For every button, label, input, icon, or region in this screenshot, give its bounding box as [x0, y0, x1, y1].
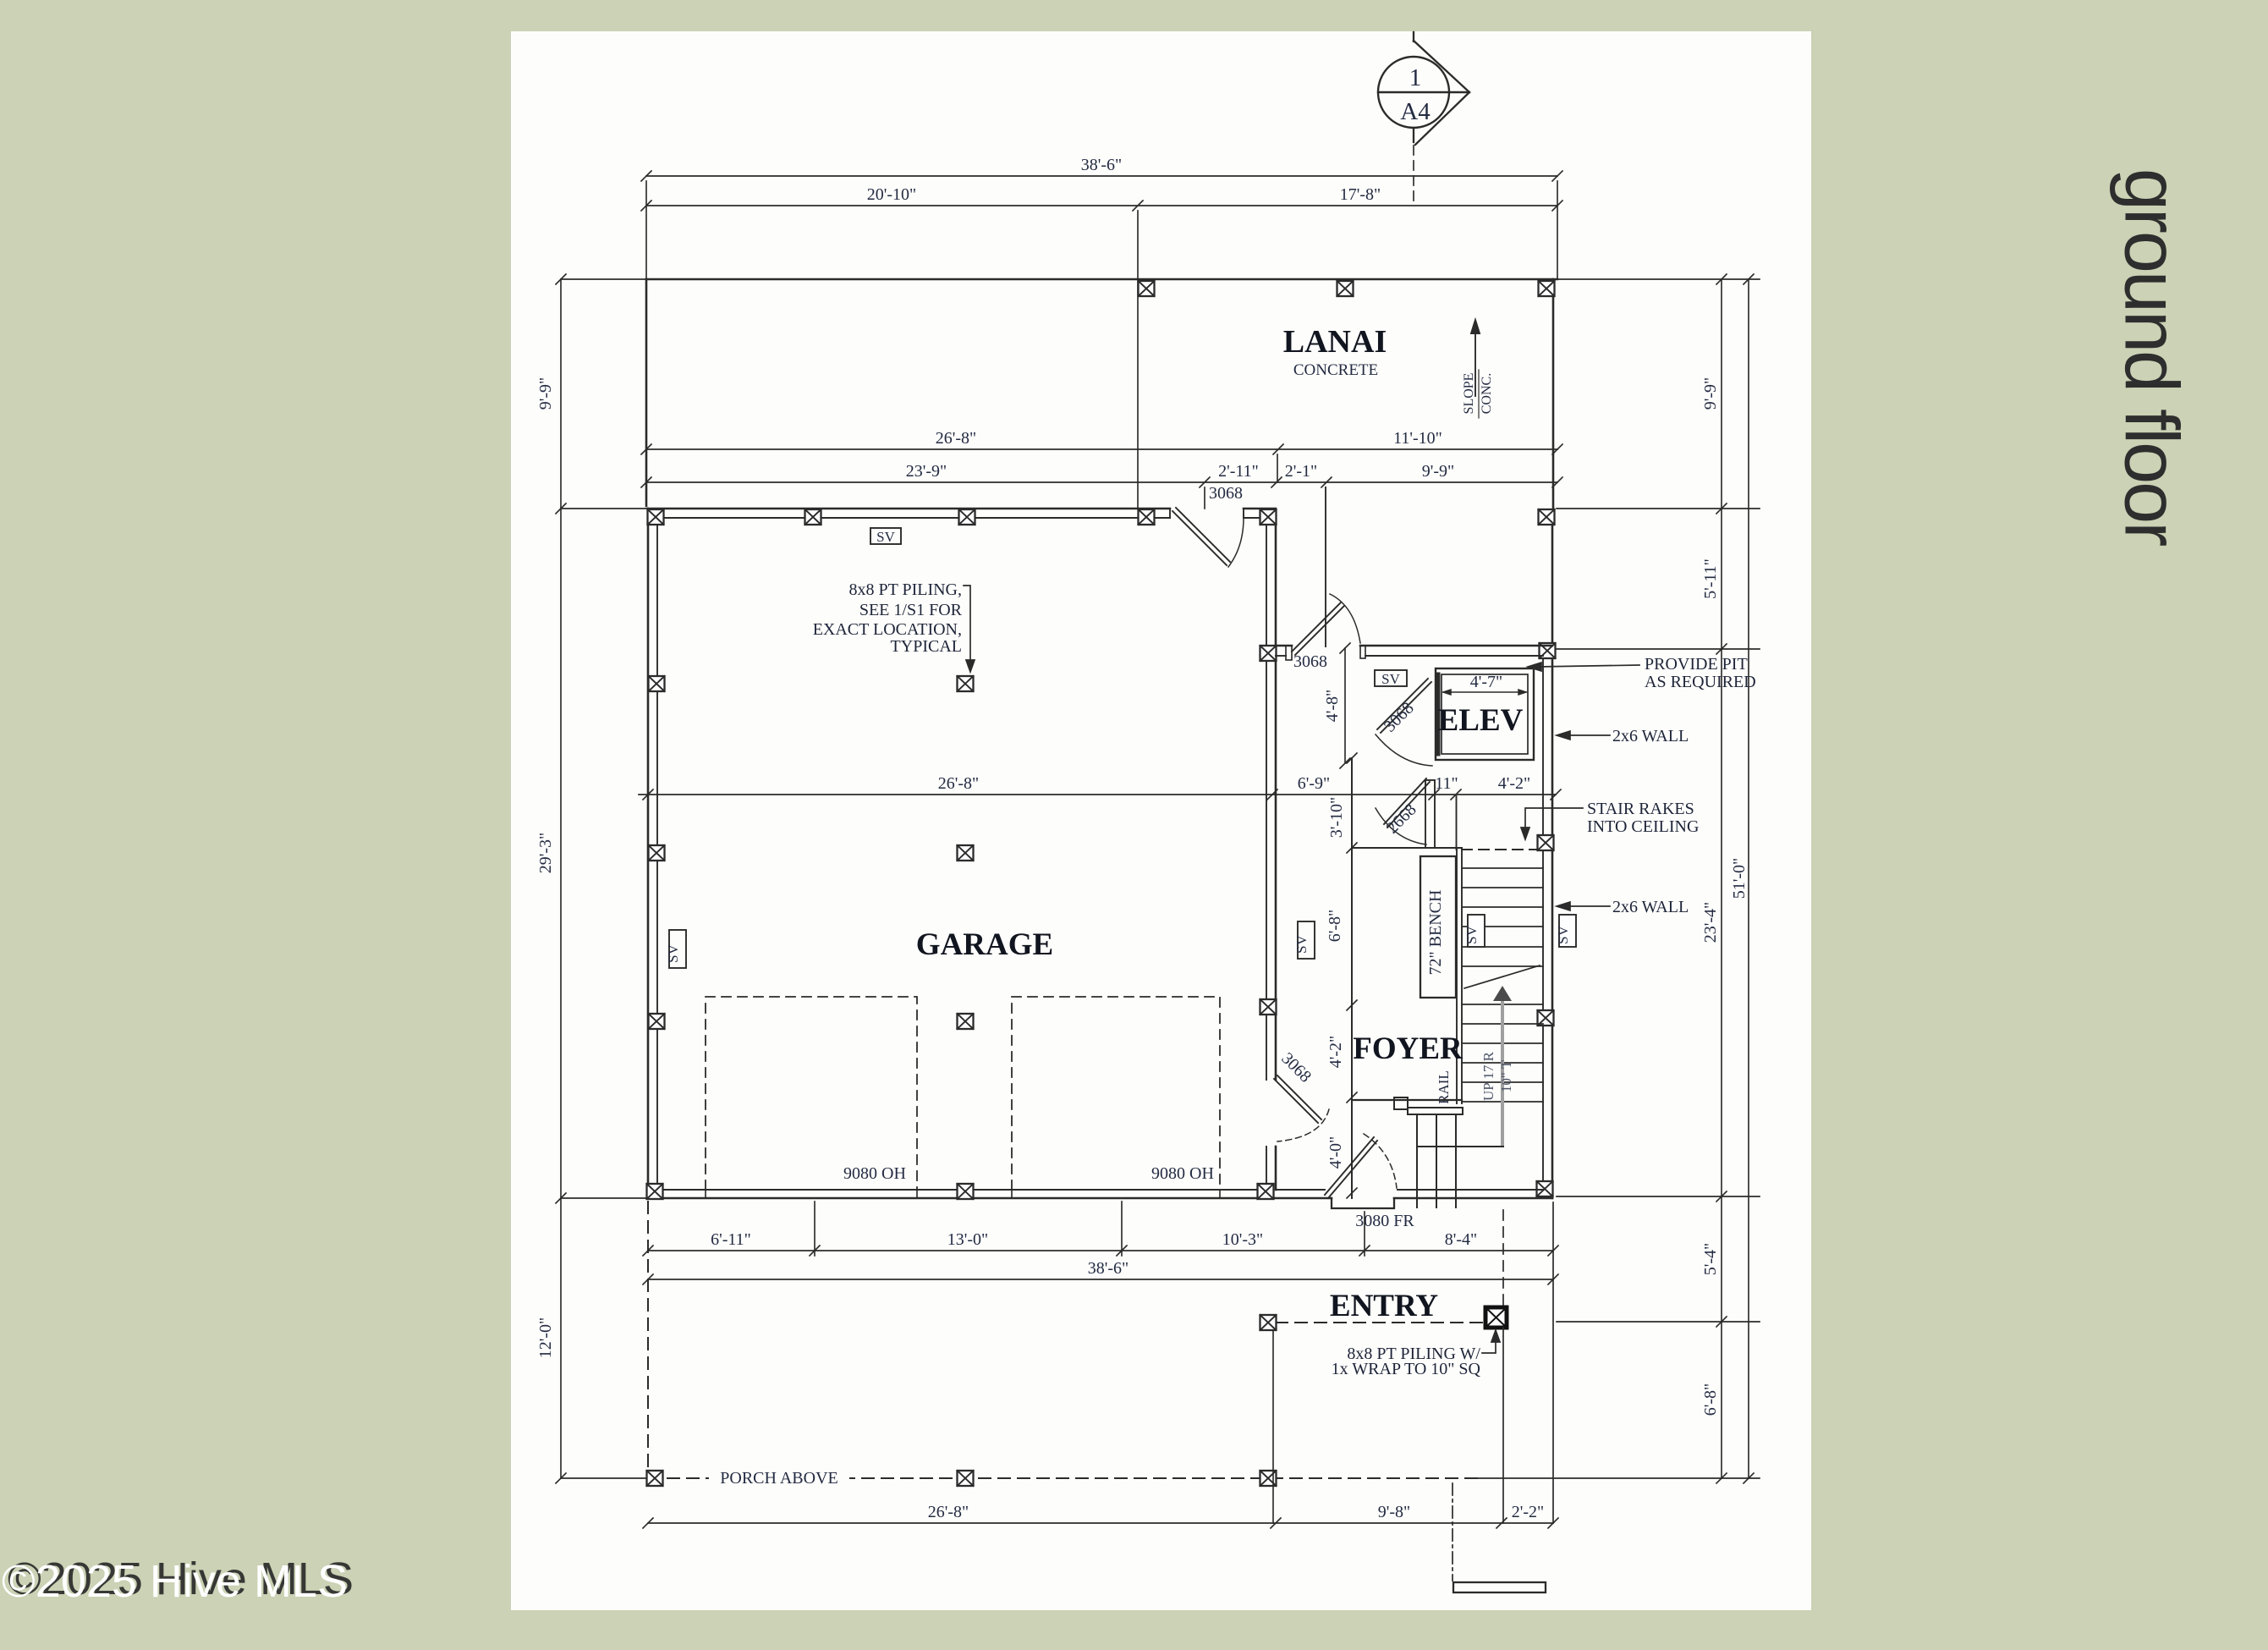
svg-text:20'-10": 20'-10" [867, 185, 916, 204]
svg-text:5'-4": 5'-4" [1701, 1243, 1720, 1275]
svg-text:4'-2": 4'-2" [1326, 1036, 1345, 1068]
svg-text:FOYER: FOYER [1353, 1031, 1463, 1066]
svg-text:51'-0": 51'-0" [1730, 858, 1749, 899]
svg-text:PORCH ABOVE: PORCH ABOVE [720, 1469, 837, 1488]
svg-text:1x WRAP TO 10" SQ: 1x WRAP TO 10" SQ [1332, 1360, 1481, 1378]
svg-text:9'-9": 9'-9" [1701, 377, 1720, 410]
svg-text:4'-7": 4'-7" [1470, 673, 1502, 691]
svg-text:17'-8": 17'-8" [1340, 185, 1381, 204]
svg-text:3068: 3068 [1293, 652, 1327, 671]
svg-text:8'-4": 8'-4" [1445, 1230, 1477, 1249]
svg-text:3'-10": 3'-10" [1327, 797, 1346, 838]
svg-text:CONC.: CONC. [1480, 373, 1494, 414]
svg-text:10" T: 10" T [1498, 1059, 1514, 1092]
svg-text:EXACT LOCATION,: EXACT LOCATION, [813, 620, 962, 639]
svg-text:1: 1 [1409, 64, 1422, 91]
svg-text:CONCRETE: CONCRETE [1293, 361, 1378, 379]
svg-text:11": 11" [1435, 774, 1458, 793]
svg-text:9'-8": 9'-8" [1378, 1503, 1410, 1521]
svg-text:4'-0": 4'-0" [1326, 1136, 1345, 1169]
svg-text:STAIR RAKES: STAIR RAKES [1587, 800, 1694, 818]
svg-text:SV: SV [1463, 925, 1480, 943]
svg-text:AS REQUIRED: AS REQUIRED [1645, 673, 1756, 691]
svg-text:GARAGE: GARAGE [916, 927, 1053, 962]
svg-text:4'-8": 4'-8" [1323, 690, 1342, 722]
svg-text:SV: SV [1293, 934, 1310, 953]
svg-text:9080 OH: 9080 OH [843, 1164, 906, 1183]
svg-text:SLOPE: SLOPE [1462, 373, 1476, 415]
svg-text:2'-11": 2'-11" [1218, 462, 1259, 481]
svg-text:11'-10": 11'-10" [1393, 429, 1442, 448]
svg-text:ENTRY: ENTRY [1330, 1289, 1438, 1323]
svg-text:10'-3": 10'-3" [1222, 1230, 1263, 1249]
svg-text:SEE 1/S1 FOR: SEE 1/S1 FOR [859, 601, 963, 619]
svg-text:23'-4": 23'-4" [1701, 902, 1720, 943]
svg-text:9'-9": 9'-9" [536, 377, 555, 410]
svg-text:SV: SV [1381, 671, 1400, 687]
svg-text:PROVIDE PIT: PROVIDE PIT [1645, 655, 1748, 674]
svg-text:8x8 PT PILING,: 8x8 PT PILING, [848, 580, 962, 599]
svg-text:ELEV: ELEV [1438, 703, 1524, 738]
svg-text:9'-9": 9'-9" [1422, 462, 1454, 481]
svg-text:3068: 3068 [1209, 484, 1243, 503]
svg-text:26'-8": 26'-8" [938, 774, 979, 793]
svg-text:2x6 WALL: 2x6 WALL [1612, 727, 1689, 745]
svg-text:3068: 3068 [1381, 699, 1418, 736]
svg-text:6'-9": 6'-9" [1298, 774, 1330, 793]
svg-text:6'-11": 6'-11" [711, 1230, 751, 1249]
svg-text:26'-8": 26'-8" [928, 1503, 969, 1521]
svg-text:SV: SV [665, 943, 681, 962]
svg-text:INTO CEILING: INTO CEILING [1587, 817, 1699, 836]
svg-text:13'-0": 13'-0" [947, 1230, 988, 1249]
svg-text:5'-11": 5'-11" [1701, 558, 1720, 599]
svg-text:29'-3": 29'-3" [536, 833, 555, 873]
svg-text:4'-2": 4'-2" [1498, 774, 1530, 793]
svg-text:SV: SV [1555, 925, 1571, 943]
svg-text:UP 17 R: UP 17 R [1480, 1051, 1496, 1101]
svg-text:38'-6": 38'-6" [1088, 1259, 1129, 1278]
svg-text:2668: 2668 [1383, 800, 1420, 838]
svg-text:72" BENCH: 72" BENCH [1426, 890, 1445, 976]
svg-text:SV: SV [876, 529, 895, 545]
svg-text:2'-2": 2'-2" [1512, 1503, 1544, 1521]
svg-text:6'-8": 6'-8" [1326, 910, 1344, 942]
svg-text:6'-8": 6'-8" [1701, 1383, 1720, 1416]
svg-text:23'-9": 23'-9" [906, 462, 947, 481]
svg-text:26'-8": 26'-8" [936, 429, 976, 448]
svg-text:LANAI: LANAI [1283, 324, 1387, 360]
svg-text:2'-1": 2'-1" [1285, 462, 1317, 481]
svg-text:TYPICAL: TYPICAL [891, 637, 962, 656]
svg-text:2x6 WALL: 2x6 WALL [1612, 898, 1689, 916]
svg-text:9080 OH: 9080 OH [1151, 1164, 1214, 1183]
svg-text:A4: A4 [1400, 98, 1431, 125]
svg-text:12'-0": 12'-0" [536, 1317, 555, 1358]
svg-text:38'-6": 38'-6" [1081, 156, 1122, 174]
